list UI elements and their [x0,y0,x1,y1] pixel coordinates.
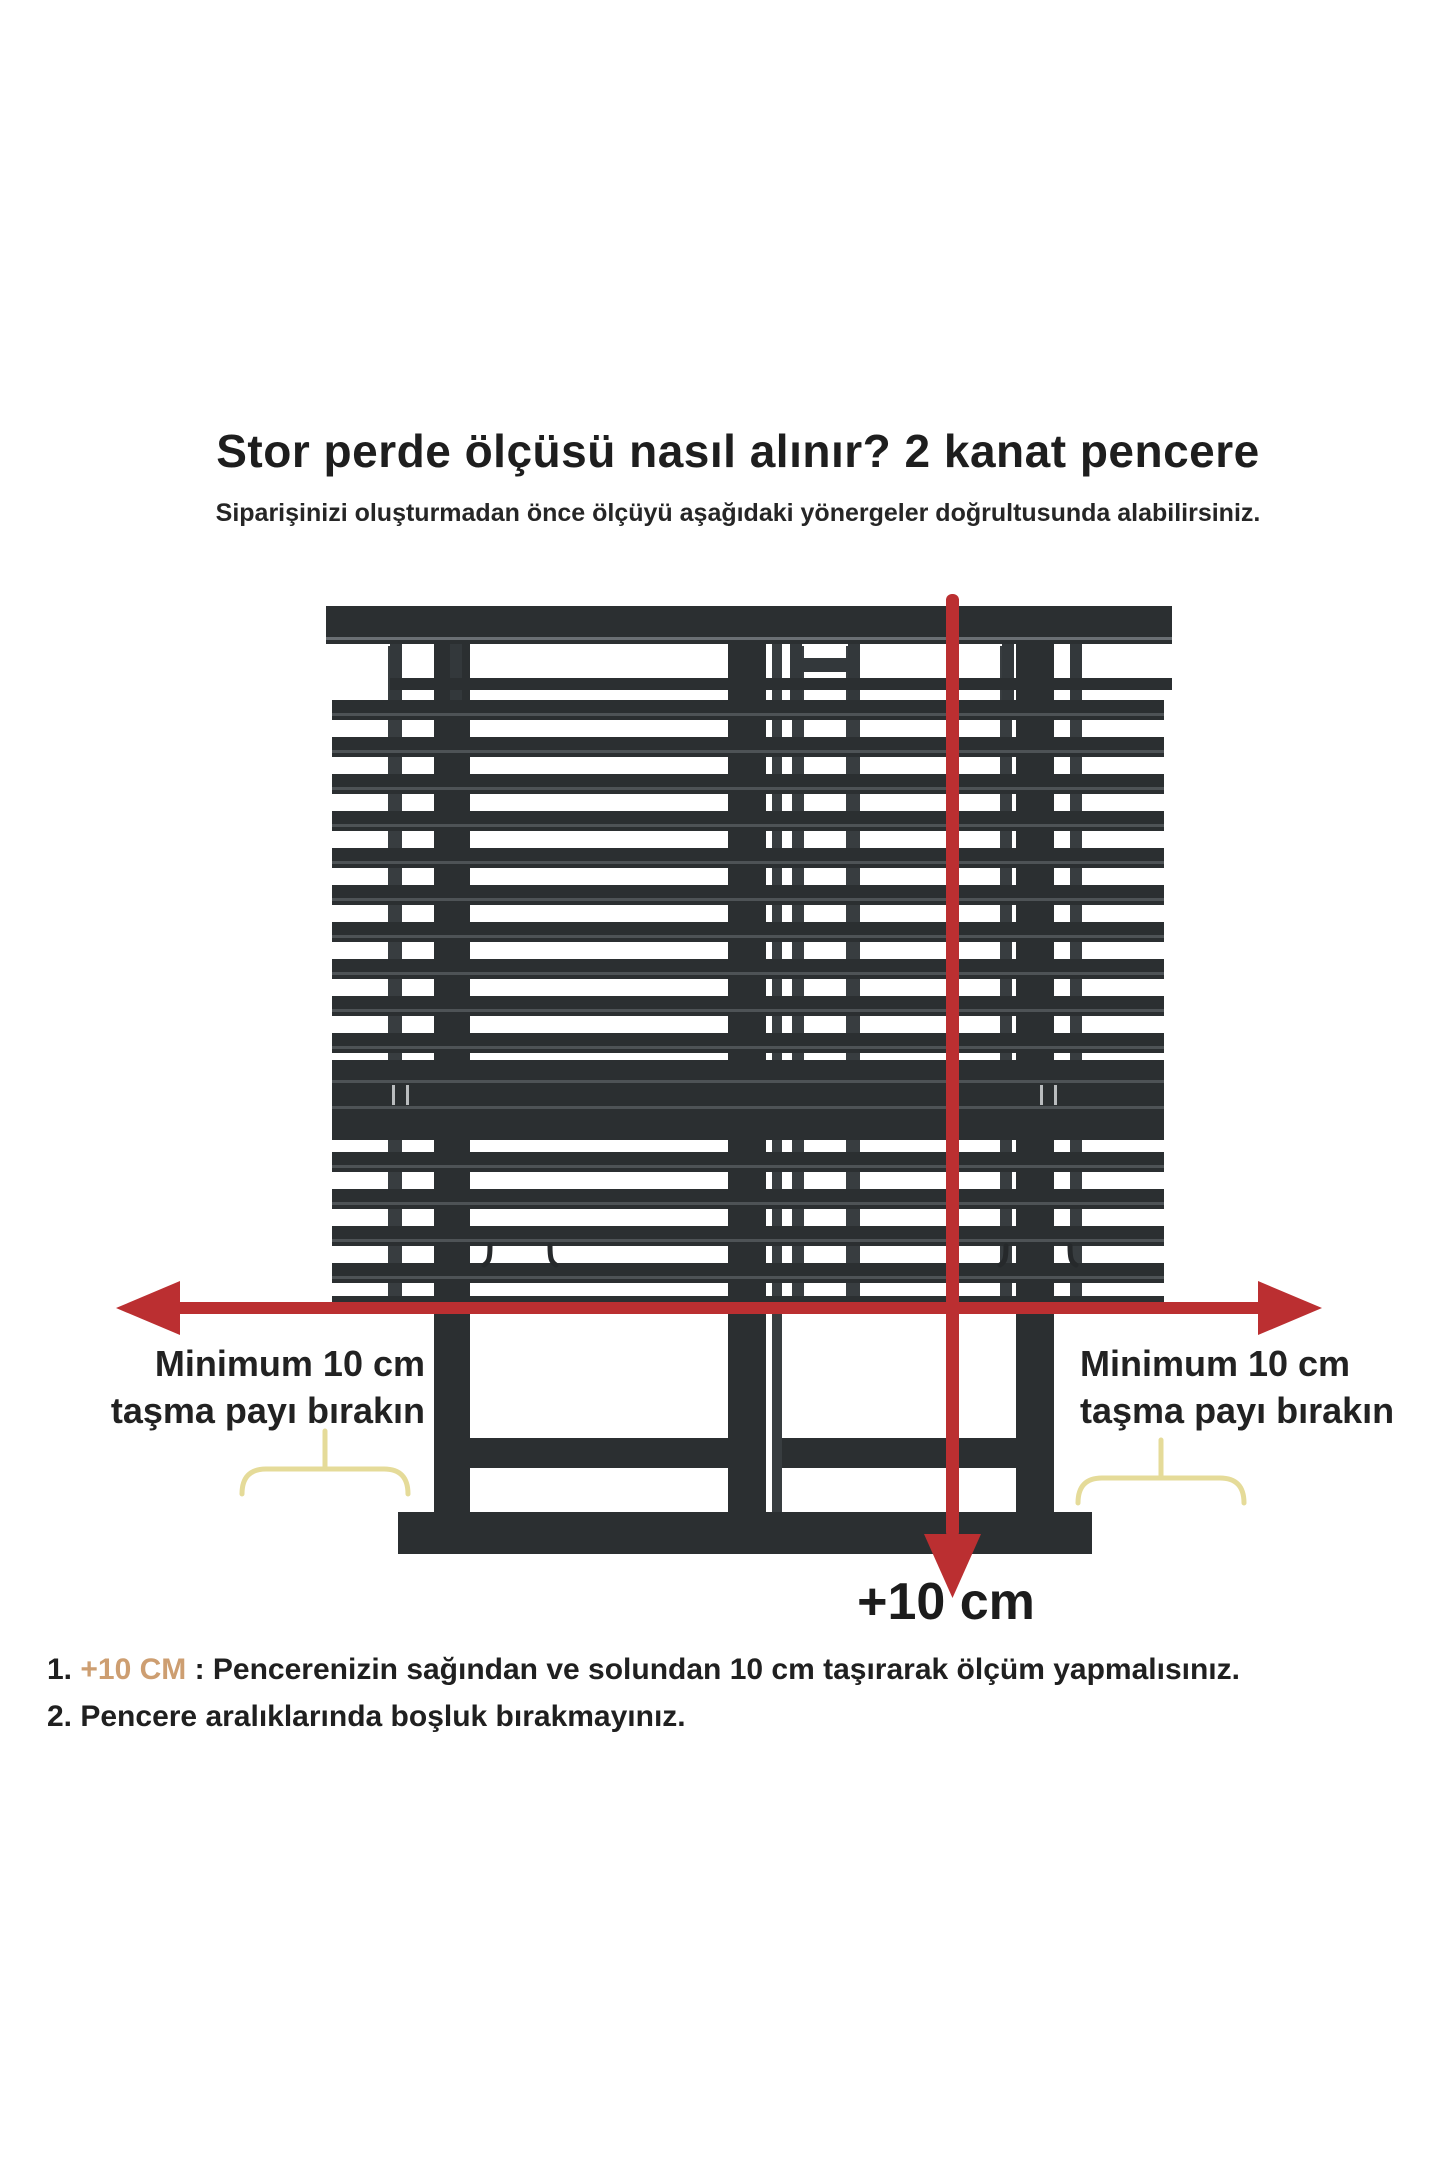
blind-slat-line [332,750,1164,753]
instruction-2-text: Pencere aralıklarında boşluk bırakmayını… [80,1700,685,1733]
measurement-guide-page: Stor perde ölçüsü nasıl alınır? 2 kanat … [0,0,1440,2160]
blind-slat-line [332,861,1164,864]
height-arrow-shaft [946,594,959,1538]
blind-slat [332,885,1164,905]
cord-tassel [484,1246,490,1265]
blind-slat [332,1263,1164,1283]
blind-slat [332,959,1164,979]
bracket [848,644,860,702]
width-arrow-head-right [1258,1281,1322,1335]
blind-slat [332,811,1164,831]
page-subtitle: Siparişinizi oluşturmadan önce ölçüyü aş… [216,499,1261,528]
blind-slat [332,1033,1164,1053]
blind-slat-line [332,972,1164,975]
blind-slat [332,996,1164,1016]
blind-slat-line [332,1239,1164,1242]
instruction-2-number: 2. [47,1700,80,1733]
bracket [790,644,802,702]
blind-slat-line [332,898,1164,901]
left-overhang-label-line1: Minimum 10 cm [0,1340,425,1387]
blind-slat [332,1226,1164,1246]
instruction-item-1: 1. +10 CM : Pencerenizin sağından ve sol… [47,1646,1240,1693]
left-pane-bottom-rail [470,1438,728,1468]
width-arrow-shaft [148,1302,1290,1314]
left-overhang-brace [242,1431,408,1494]
blind-middle-band [332,1060,1164,1140]
instruction-1-highlight: +10 CM [80,1653,186,1686]
band-tick [406,1085,409,1105]
left-overhang-label: Minimum 10 cm taşma payı bırakın [0,1340,425,1434]
blind-secondary-rail [390,678,1172,690]
blind-slat [332,848,1164,868]
cord-tassel [550,1246,556,1265]
blind-middle-band-line [332,1080,1164,1083]
width-arrow-head-left [116,1281,180,1335]
right-overhang-brace [1078,1440,1244,1503]
blind-slat [332,1152,1164,1172]
band-tick [392,1085,395,1105]
page-title: Stor perde ölçüsü nasıl alınır? 2 kanat … [216,424,1260,478]
blind-slat-line [332,1202,1164,1205]
bracket [1002,644,1014,702]
blind-slat-line [332,1276,1164,1279]
bracket [1070,644,1082,702]
blind-slat-line [332,787,1164,790]
blind-middle-band-line [332,1106,1164,1109]
instruction-list: 1. +10 CM : Pencerenizin sağından ve sol… [47,1646,1240,1740]
right-overhang-label-line1: Minimum 10 cm [1080,1340,1394,1387]
instruction-1-text: : Pencerenizin sağından ve solundan 10 c… [186,1653,1240,1686]
instruction-1-number: 1. [47,1653,80,1686]
window-sill [398,1512,1092,1554]
blind-slat-line [332,1009,1164,1012]
blind-slat [332,774,1164,794]
blind-slat [332,1189,1164,1209]
blind-slat-line [332,824,1164,827]
bracket-connector [790,658,860,672]
bracket [390,644,402,702]
instruction-item-2: 2. Pencere aralıklarında boşluk bırakmay… [47,1693,1240,1740]
height-arrow-label: +10 cm [857,1572,1035,1632]
blind-slat-line [332,1046,1164,1049]
right-overhang-label-line2: taşma payı bırakın [1080,1387,1394,1434]
blind-top-rail-highlight [326,637,1172,640]
band-tick [1054,1085,1057,1105]
blind-slat [332,922,1164,942]
blind-slat-line [332,935,1164,938]
bracket [450,644,462,702]
measurement-diagram [0,0,1440,2160]
band-tick [1040,1085,1043,1105]
blind-slat [332,700,1164,720]
blind-slat-line [332,713,1164,716]
left-overhang-label-line2: taşma payı bırakın [0,1387,425,1434]
blind-slat-line [332,1165,1164,1168]
right-pane-bottom-rail [782,1438,1016,1468]
blind-slat [332,737,1164,757]
right-overhang-label: Minimum 10 cm taşma payı bırakın [1080,1340,1394,1434]
